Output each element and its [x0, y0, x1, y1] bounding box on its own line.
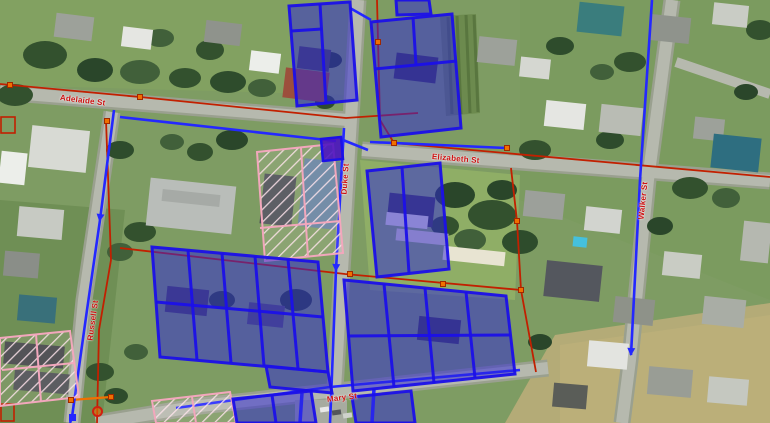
map-viewport[interactable]: Adelaide StDuke StElizabeth StWalker StR…	[0, 0, 770, 423]
overlay-layer	[0, 0, 770, 423]
solid-purple-parcel	[321, 137, 343, 161]
